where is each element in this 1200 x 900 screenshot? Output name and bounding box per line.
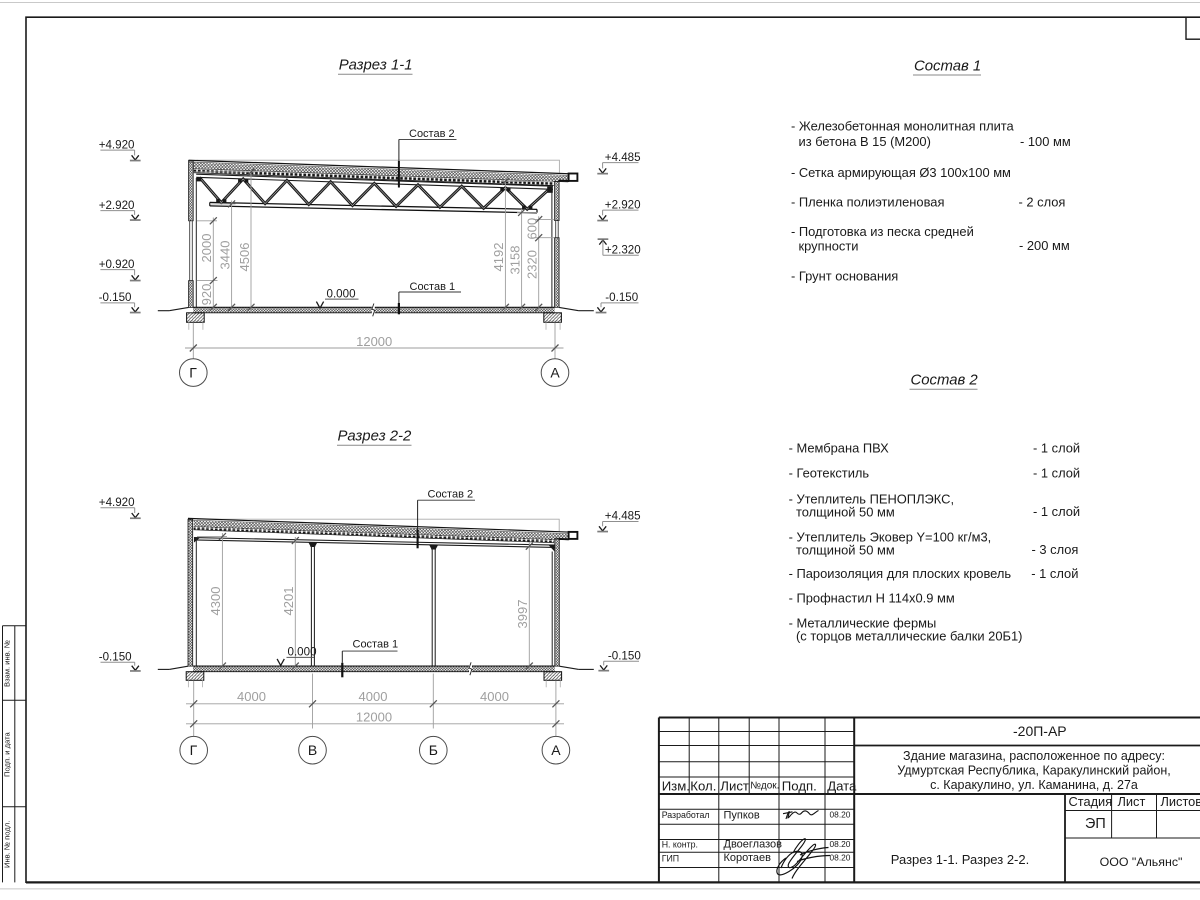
svg-text:Состав 1: Состав 1 [410,281,456,293]
svg-text:Взам. инв. №: Взам. инв. № [3,640,12,687]
svg-text:Г: Г [189,365,197,381]
svg-text:толщиной 50 мм: толщиной 50 мм [796,543,895,558]
svg-text:08.20: 08.20 [830,810,851,820]
svg-text:крупности: крупности [799,239,859,254]
svg-text:0.000: 0.000 [327,287,356,300]
svg-text:Здание магазина, расположенное: Здание магазина, расположенное по адресу… [903,749,1165,763]
svg-text:- 100 мм: - 100 мм [1020,134,1071,149]
svg-text:- Грунт основания: - Грунт основания [791,268,898,283]
svg-text:2320: 2320 [525,250,540,279]
svg-text:Изм.: Изм. [662,778,690,793]
svg-text:+4.920: +4.920 [99,496,135,509]
svg-text:Подп. и дата: Подп. и дата [3,731,12,777]
svg-text:4300: 4300 [208,587,223,616]
svg-text:А: А [551,742,561,758]
svg-text:- 200 мм: - 200 мм [1019,238,1070,253]
svg-text:ЭП: ЭП [1085,816,1106,832]
svg-text:08.20: 08.20 [830,853,851,863]
svg-text:Инв. № подл.: Инв. № подл. [3,821,12,868]
svg-text:0.000: 0.000 [288,646,317,659]
svg-text:- Пароизоляция для плоских кро: - Пароизоляция для плоских кровель [789,566,1012,581]
svg-text:- 1 слой: - 1 слой [1033,504,1080,519]
svg-text:-20П-АР: -20П-АР [1013,723,1067,739]
svg-text:4201: 4201 [281,587,296,616]
svg-text:Состав 2: Состав 2 [911,373,979,389]
svg-text:-0.150: -0.150 [99,291,132,304]
svg-text:Разрез 1-1: Разрез 1-1 [339,58,413,74]
svg-text:Стадия: Стадия [1069,794,1113,809]
svg-text:- Подготовка из песка средней: - Подготовка из песка средней [791,224,974,239]
svg-text:- 1 слой: - 1 слой [1033,465,1080,480]
svg-text:+2.920: +2.920 [99,199,135,212]
svg-text:- 1 слой: - 1 слой [1033,440,1080,455]
svg-text:ООО "Альянс": ООО "Альянс" [1100,855,1183,869]
svg-text:Коротаев: Коротаев [724,852,772,864]
svg-text:3997: 3997 [515,600,530,629]
svg-text:Разрез 2-2: Разрез 2-2 [338,429,413,445]
svg-text:920: 920 [199,284,214,306]
svg-text:4000: 4000 [480,689,509,704]
svg-text:из бетона В 15 (М200): из бетона В 15 (М200) [799,134,931,149]
svg-text:Разработал: Разработал [662,810,710,820]
svg-text:08.20: 08.20 [830,839,851,849]
svg-text:Б: Б [429,742,438,758]
svg-text:- 1 слой: - 1 слой [1031,566,1078,581]
svg-text:Разрез 1-1. Разрез 2-2.: Разрез 1-1. Разрез 2-2. [891,852,1029,867]
svg-text:Подп.: Подп. [782,778,817,793]
svg-text:-0.150: -0.150 [99,651,132,664]
svg-text:Удмуртская Республика, Каракул: Удмуртская Республика, Каракулинский рай… [897,764,1171,778]
svg-text:12000: 12000 [356,334,392,349]
svg-text:+2.920: +2.920 [605,198,641,211]
svg-text:12000: 12000 [356,710,392,725]
svg-text:4000: 4000 [359,689,388,704]
svg-text:№док.: №док. [750,781,779,792]
svg-text:Пупков: Пупков [724,809,760,821]
svg-text:600: 600 [525,218,540,240]
svg-text:Г: Г [190,742,198,758]
svg-text:(с торцов металлические балки: (с торцов металлические балки 20Б1) [796,629,1022,644]
svg-text:- Профнастил Н 114х0.9 мм: - Профнастил Н 114х0.9 мм [789,590,955,605]
svg-text:+4.485: +4.485 [605,510,641,523]
svg-text:2000: 2000 [199,234,214,263]
svg-text:Состав 2: Состав 2 [428,489,474,501]
svg-text:Кол.: Кол. [690,778,716,793]
svg-text:Двоеглазов: Двоеглазов [724,838,783,850]
svg-text:+0.920: +0.920 [99,258,135,271]
svg-text:Состав 1: Состав 1 [353,639,399,651]
svg-text:- Мембрана ПВХ: - Мембрана ПВХ [789,440,890,455]
svg-text:В: В [308,742,317,758]
svg-text:- Сетка армирующая Ø3 100х100: - Сетка армирующая Ø3 100х100 мм [791,165,1011,180]
svg-text:Лист: Лист [720,778,749,793]
svg-text:3158: 3158 [507,246,522,275]
svg-text:4192: 4192 [491,243,506,272]
svg-text:-0.150: -0.150 [605,291,638,304]
svg-text:4000: 4000 [237,689,266,704]
svg-text:Листов: Листов [1161,794,1200,809]
svg-text:толщиной 50 мм: толщиной 50 мм [796,505,895,520]
svg-text:ГИП: ГИП [662,853,679,863]
svg-text:+4.920: +4.920 [99,138,135,151]
svg-text:Состав 1: Состав 1 [914,58,981,74]
svg-text:Дата: Дата [827,778,857,793]
svg-text:- Железобетонная монолитная п: - Железобетонная монолитная плита [791,119,1015,134]
svg-text:- Пленка полиэтиленовая: - Пленка полиэтиленовая [791,195,944,210]
svg-text:4506: 4506 [237,243,252,272]
svg-text:-0.150: -0.150 [608,649,641,662]
svg-text:- Геотекстиль: - Геотекстиль [789,465,870,480]
svg-text:А: А [550,365,560,381]
svg-text:+4.485: +4.485 [605,151,641,164]
svg-text:- 3 слоя: - 3 слоя [1032,542,1079,557]
svg-text:Лист: Лист [1118,794,1146,809]
svg-text:Состав 2: Состав 2 [409,128,455,140]
svg-text:Н. контр.: Н. контр. [662,840,698,850]
svg-text:3440: 3440 [218,241,233,270]
svg-text:+2.320: +2.320 [605,243,641,256]
svg-text:- 2 слоя: - 2 слоя [1019,195,1066,210]
svg-text:с. Каракулино, ул. Каманина, д: с. Каракулино, ул. Каманина, д. 27а [930,778,1138,792]
